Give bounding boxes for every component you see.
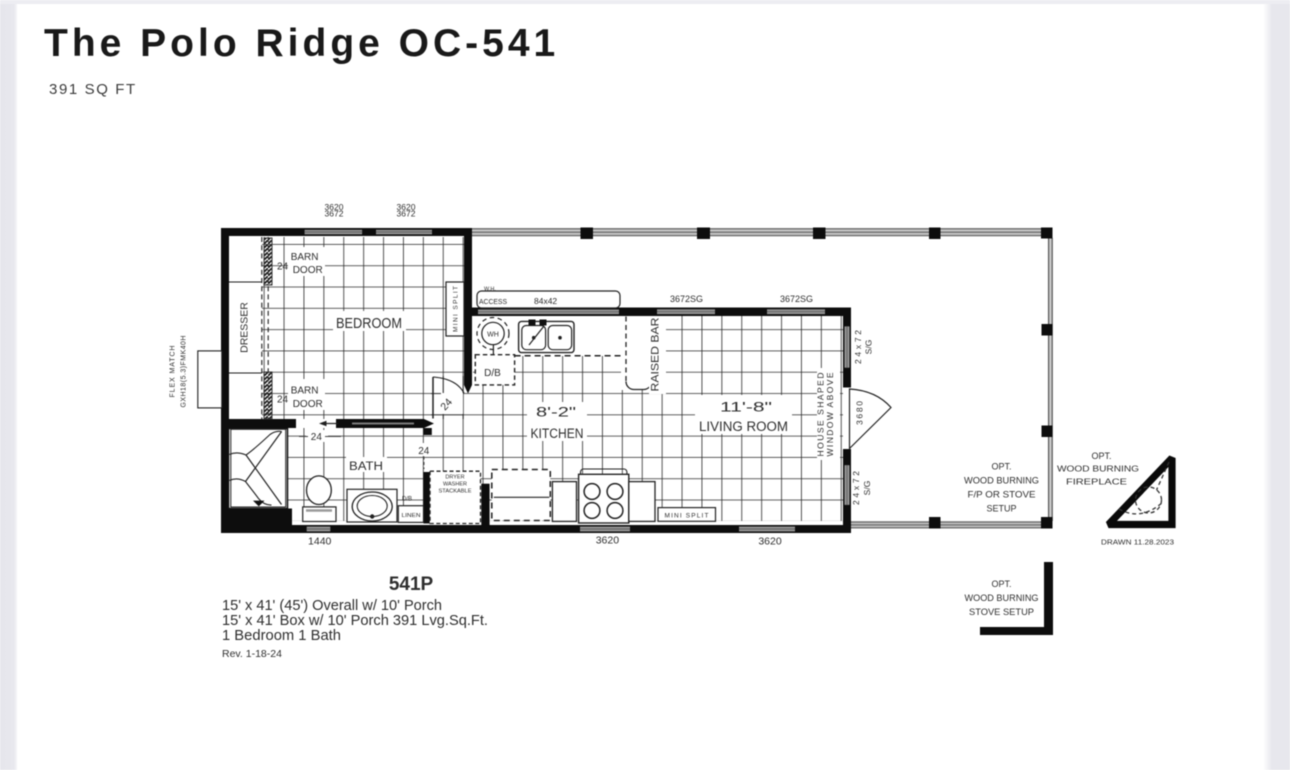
svg-text:BARN: BARN <box>291 252 319 263</box>
svg-text:24: 24 <box>311 432 323 443</box>
svg-text:W.H.: W.H. <box>484 287 496 293</box>
svg-text:3672: 3672 <box>397 208 416 218</box>
svg-text:DOOR: DOOR <box>293 265 323 276</box>
svg-text:WOOD BURNING: WOOD BURNING <box>965 593 1039 603</box>
svg-text:S/G: S/G <box>864 340 874 355</box>
svg-text:OPT.: OPT. <box>991 579 1011 589</box>
svg-text:3680: 3680 <box>855 401 865 425</box>
svg-text:DOOR: DOOR <box>293 399 323 410</box>
svg-text:F/P OR STOVE: F/P OR STOVE <box>968 490 1036 500</box>
svg-text:541P: 541P <box>389 574 434 595</box>
svg-text:SETUP: SETUP <box>986 504 1016 514</box>
svg-text:FIREPLACE: FIREPLACE <box>1066 477 1127 487</box>
svg-text:8'-2": 8'-2" <box>536 405 576 420</box>
svg-text:24: 24 <box>418 446 430 457</box>
svg-text:ACCESS: ACCESS <box>479 299 507 306</box>
svg-text:KITCHEN: KITCHEN <box>531 426 584 441</box>
svg-text:MINI SPLIT: MINI SPLIT <box>453 286 460 332</box>
svg-text:24x72: 24x72 <box>851 471 861 505</box>
svg-text:3620: 3620 <box>758 536 782 548</box>
svg-text:1440: 1440 <box>308 536 332 548</box>
svg-text:MINI SPLIT: MINI SPLIT <box>665 513 709 520</box>
svg-text:OPT.: OPT. <box>991 462 1011 472</box>
svg-text:FLEX MATCH: FLEX MATCH <box>170 346 177 398</box>
svg-text:WINDOW ABOVE: WINDOW ABOVE <box>825 372 835 456</box>
svg-text:WASHER: WASHER <box>443 482 467 488</box>
svg-text:3672SG: 3672SG <box>670 294 703 304</box>
svg-text:24: 24 <box>277 395 289 406</box>
svg-text:3672: 3672 <box>325 208 344 218</box>
svg-text:24: 24 <box>277 262 289 273</box>
svg-text:WOOD BURNING: WOOD BURNING <box>964 476 1039 486</box>
svg-text:WH: WH <box>487 332 499 339</box>
svg-text:DRYER: DRYER <box>445 475 464 481</box>
svg-text:DRESSER: DRESSER <box>239 302 251 353</box>
svg-text:OPT.: OPT. <box>1091 451 1111 461</box>
svg-text:LINEN: LINEN <box>402 513 421 519</box>
svg-text:BEDROOM: BEDROOM <box>336 315 402 332</box>
svg-text:LIVING ROOM: LIVING ROOM <box>699 419 788 434</box>
svg-text:HOUSE SHAPED: HOUSE SHAPED <box>816 373 826 457</box>
svg-text:1 Bedroom 1 Bath: 1 Bedroom 1 Bath <box>222 627 341 644</box>
svg-text:STOVE SETUP: STOVE SETUP <box>969 607 1034 617</box>
svg-text:84x42: 84x42 <box>534 296 557 306</box>
svg-text:24x72: 24x72 <box>853 330 863 364</box>
svg-text:Rev. 1-18-24: Rev. 1-18-24 <box>222 648 282 660</box>
svg-text:WOOD BURNING: WOOD BURNING <box>1057 464 1139 474</box>
svg-text:STACKABLE: STACKABLE <box>439 489 472 495</box>
svg-text:3672SG: 3672SG <box>780 294 813 304</box>
svg-text:BATH: BATH <box>349 461 383 473</box>
svg-text:RAISED BAR: RAISED BAR <box>650 317 662 391</box>
svg-text:D/B: D/B <box>484 368 501 379</box>
svg-text:S/G: S/G <box>862 481 872 496</box>
svg-text:11'-8": 11'-8" <box>720 399 772 415</box>
svg-text:D/B: D/B <box>402 497 412 503</box>
svg-text:BARN: BARN <box>291 386 319 397</box>
svg-text:GXH18(5.3)FMK40H: GXH18(5.3)FMK40H <box>181 336 188 408</box>
svg-text:3620: 3620 <box>596 535 620 547</box>
svg-text:DRAWN 11.28.2023: DRAWN 11.28.2023 <box>1101 538 1174 547</box>
